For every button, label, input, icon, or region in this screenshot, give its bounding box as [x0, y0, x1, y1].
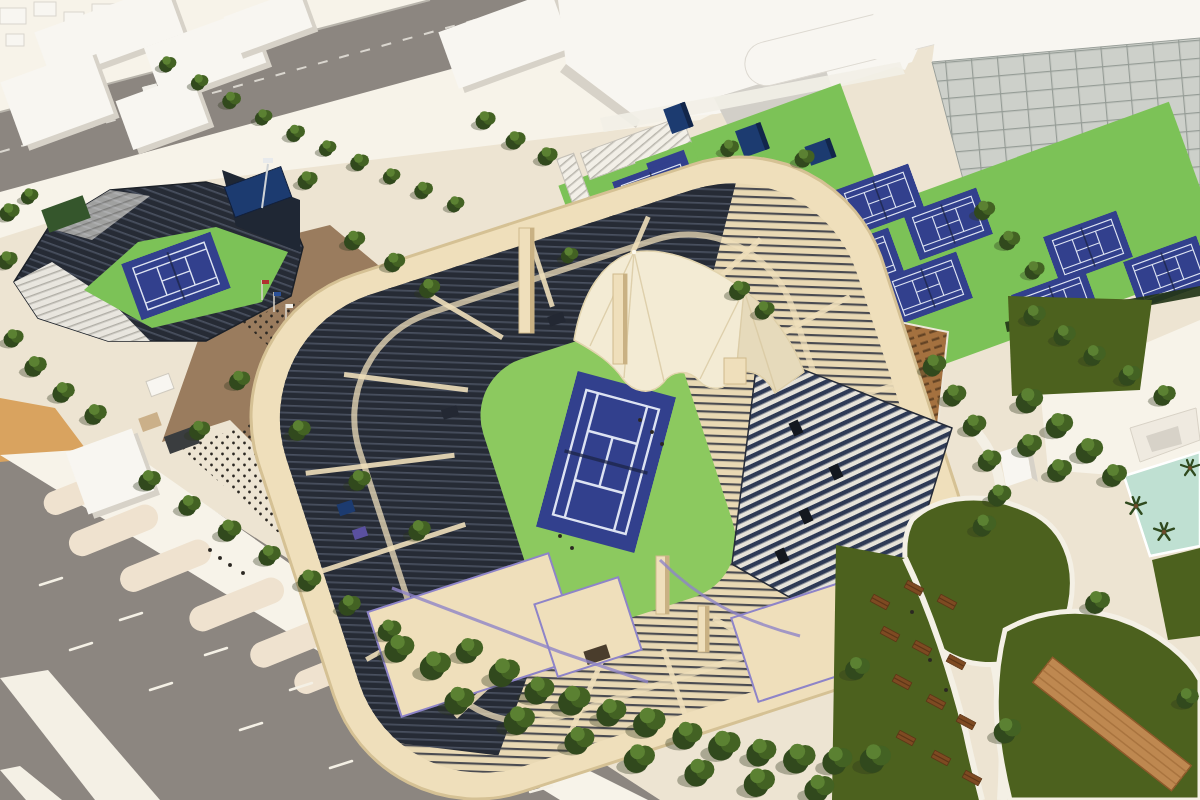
- aerial-rendering: Aerial architectural rendering of a tenn…: [0, 0, 1200, 800]
- scene-svg: Aerial architectural rendering of a tenn…: [0, 0, 1200, 800]
